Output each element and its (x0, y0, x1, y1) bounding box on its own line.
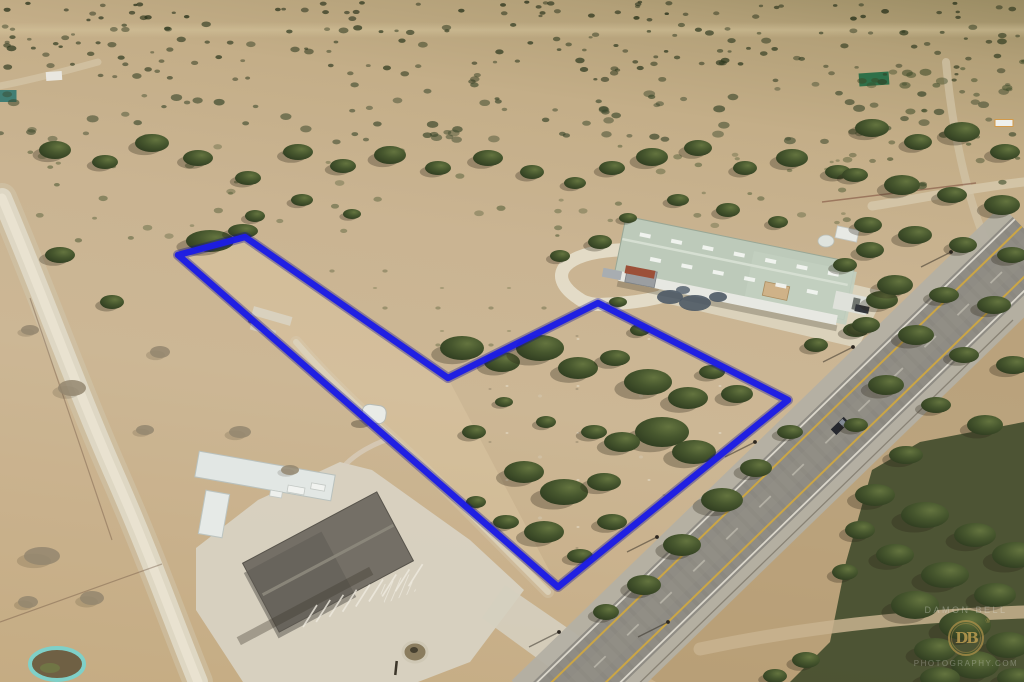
watermark-name: DAMON BELL (910, 606, 1022, 616)
registered-mark: ® (986, 619, 990, 625)
photographer-watermark: DAMON BELL DB ® PHOTOGRAPHY.COM (910, 606, 1022, 668)
logo-monogram: DB (955, 629, 977, 647)
stock-pond (30, 648, 84, 680)
photographer-logo-icon: DB ® (948, 620, 984, 656)
scene-canvas (0, 0, 1024, 682)
watermark-domain: PHOTOGRAPHY.COM (910, 659, 1022, 668)
aerial-photo: DAMON BELL DB ® PHOTOGRAPHY.COM (0, 0, 1024, 682)
